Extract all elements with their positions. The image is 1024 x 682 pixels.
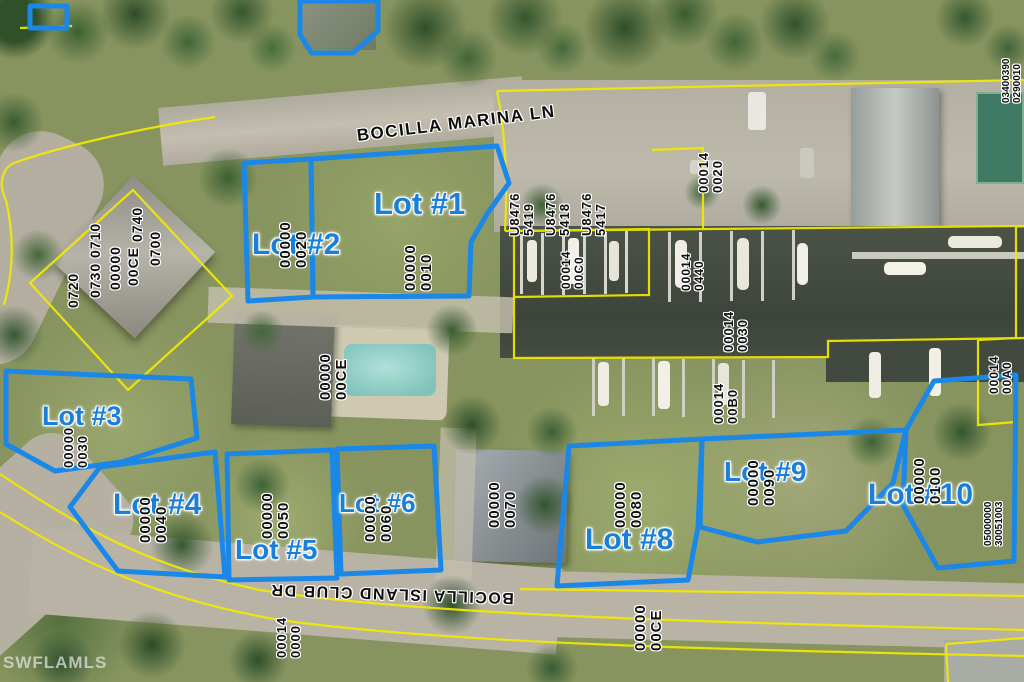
parcel-col: 0010	[419, 213, 434, 291]
parcel-col: 0080	[629, 476, 644, 528]
tennis-court	[976, 92, 1024, 184]
parcel-number-00c0: 00014 00C0	[560, 239, 585, 289]
lot-label-8: Lot #8	[585, 523, 673, 557]
aerial-parcel-map: BOCILLA MARINA LN BOCILLA ISLAND CLUB DR…	[0, 0, 1024, 682]
parcel-col: 0730 0710	[88, 206, 102, 298]
parcel-number-0730-0710: 0730 0710	[88, 206, 102, 298]
parcel-col: 00B0	[726, 366, 739, 424]
parcel-col: U8476	[580, 172, 593, 236]
parcel-col: 00000	[62, 420, 75, 468]
parcel-col: 00014	[560, 239, 572, 289]
parcel-col: 0290010	[1013, 25, 1023, 103]
road-bocilla-club-east	[517, 570, 1024, 650]
parcel-col: 0700	[148, 220, 162, 266]
parking-lot	[494, 80, 1024, 232]
parcel-col: 5418	[558, 172, 571, 236]
parcel-col: 00014	[712, 366, 725, 424]
parcel-col: U8476	[508, 172, 521, 236]
parcel-col: 00000	[138, 491, 153, 543]
parcel-col: 00000	[912, 452, 927, 504]
parcel-col: 0720	[66, 258, 80, 308]
parcel-col: 05000000	[984, 436, 994, 546]
parcel-col: 00000	[278, 196, 293, 268]
watermark: SWFLAMLS	[3, 653, 107, 673]
parcel-number-u5417: U8476 5417	[580, 172, 607, 236]
parcel-number-lot8: 00000 0080	[613, 476, 644, 528]
parcel-number-lot10: 00000 0100	[912, 452, 943, 504]
parcel-col: 5417	[594, 172, 607, 236]
parcel-col: 0440	[693, 239, 705, 291]
parcel-number-00b0: 00014 00B0	[712, 366, 739, 424]
parcel-col: 0100	[928, 452, 943, 504]
parcel-col: 00CE	[126, 240, 140, 286]
parcel-col: 0020	[294, 196, 309, 268]
parcel-number-0740: 0740	[130, 198, 144, 242]
parcel-col: 00000	[108, 236, 122, 290]
parcel-col: 0030	[76, 420, 89, 468]
parcel-col: 0050	[276, 489, 291, 539]
parcel-number-0030-canal: 00014 0030	[722, 296, 749, 352]
parcel-col: 00014	[697, 138, 710, 193]
parcel-col: 0090	[762, 454, 777, 506]
parcel-col: 00000	[403, 213, 418, 291]
building-bottom-right	[944, 640, 1024, 682]
parcel-number-lot1: 00000 0010	[403, 213, 434, 291]
parcel-col: U8476	[544, 172, 557, 236]
parcel-number-strap: 05000000 30051003	[984, 436, 1005, 546]
parcel-number-u5419: U8476 5419	[508, 172, 535, 236]
parcel-col: 5419	[522, 172, 535, 236]
parcel-number-lot7: 00000 0070	[487, 476, 518, 528]
parcel-col: 00000	[318, 342, 333, 400]
parcel-number-0720: 0720	[66, 258, 80, 308]
building-top-middle	[302, 2, 376, 50]
parcel-col: 00000	[363, 487, 378, 542]
parcel-number-0020: 00014 0020	[697, 138, 724, 193]
parcel-col: 00000	[613, 476, 628, 528]
parcel-number-lot3: 00000 0030	[62, 420, 89, 468]
parcel-col: 0000	[289, 602, 302, 658]
parcel-number-pool: 00000 00CE	[318, 342, 349, 400]
parcel-col: 03400390	[1002, 25, 1012, 103]
parcel-number-lot6: 00000 0060	[363, 487, 394, 542]
parcel-number-lot9: 00000 0090	[746, 454, 777, 506]
parcel-col: 0020	[711, 138, 724, 193]
parcel-number-lot5: 00000 0050	[260, 489, 291, 539]
parcel-col: 00014	[680, 239, 692, 291]
driveway	[435, 427, 476, 580]
parcel-col: 30051003	[995, 436, 1005, 546]
parcel-number-topright: 03400390 0290010	[1002, 25, 1023, 103]
parcel-col: 00000	[260, 489, 275, 539]
parcel-col: 00000	[487, 476, 502, 528]
parcel-col: 0070	[503, 476, 518, 528]
parcel-col: 0060	[379, 487, 394, 542]
parcel-number-0700: 0700	[148, 220, 162, 266]
parcel-col: 0040	[154, 491, 169, 543]
parcel-number-u5418: U8476 5418	[544, 172, 571, 236]
parcel-col: 00000	[633, 591, 648, 651]
parcel-col: 00000	[746, 454, 761, 506]
parcel-col: 00014	[722, 296, 735, 352]
parcel-col: 00A0	[1001, 342, 1013, 394]
parcel-number-road-east: 00000 00CE	[633, 591, 664, 651]
parcel-col: 00CE	[649, 591, 664, 651]
marina-building	[851, 88, 939, 235]
parcel-col: 00CE	[334, 342, 349, 400]
parcel-col: 0030	[736, 296, 749, 352]
parcel-number-0440: 00014 0440	[680, 239, 705, 291]
parcel-number-00000-tl: 00000	[108, 236, 122, 290]
parcel-col: 00C0	[573, 239, 585, 289]
parcel-number-00a0: 00014 00A0	[988, 342, 1013, 394]
parcel-col: 0740	[130, 198, 144, 242]
parcel-number-00ce-tl: 00CE	[126, 240, 140, 286]
parcel-number-lot4: 00000 0040	[138, 491, 169, 543]
parcel-col: 00014	[275, 602, 288, 658]
parcel-number-road-west: 00014 0000	[275, 602, 302, 658]
parcel-col: 00014	[988, 342, 1000, 394]
parcel-number-lot2: 00000 0020	[278, 196, 309, 268]
swimming-pool	[344, 344, 436, 396]
